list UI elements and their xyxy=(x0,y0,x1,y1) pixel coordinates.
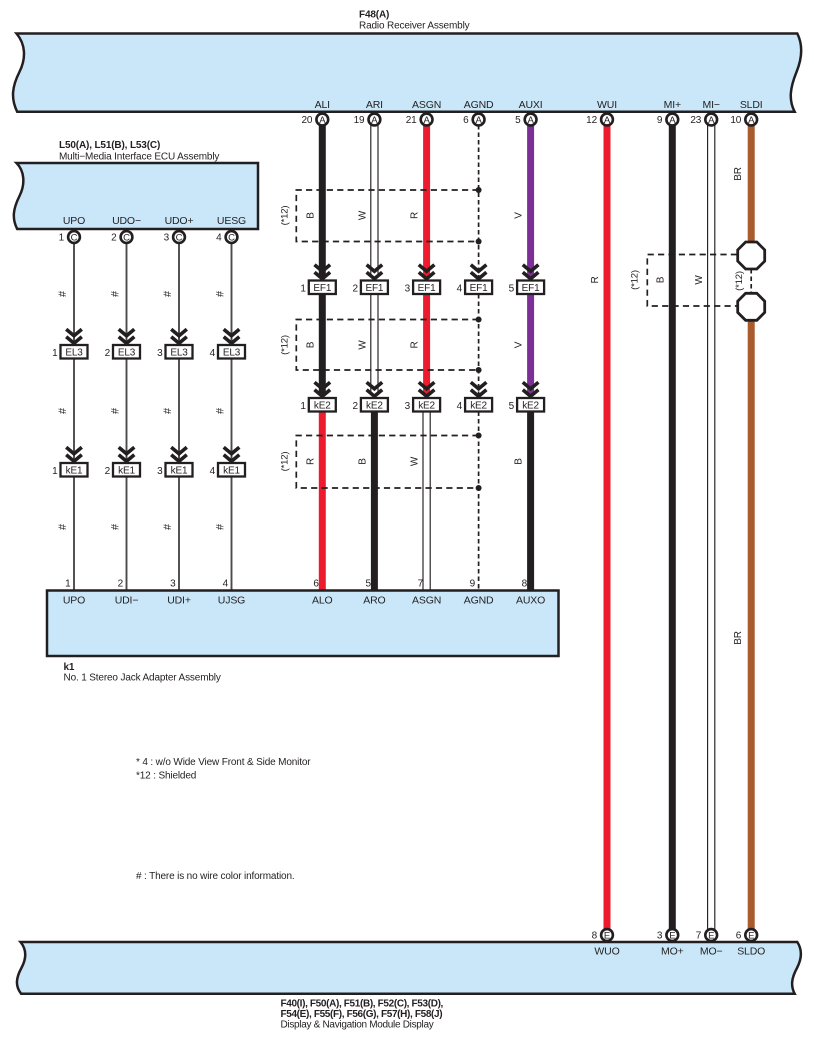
svg-text:#: # xyxy=(110,407,122,414)
svg-text:6: 6 xyxy=(736,931,742,942)
svg-text:A: A xyxy=(528,115,535,126)
svg-text:2: 2 xyxy=(352,283,358,294)
svg-text:#: # xyxy=(215,523,227,530)
svg-text:BR: BR xyxy=(733,167,744,181)
svg-text:#: # xyxy=(215,407,227,414)
svg-text:5: 5 xyxy=(515,115,521,126)
svg-text:ALI: ALI xyxy=(315,99,330,111)
svg-text:kE1: kE1 xyxy=(66,466,83,477)
svg-text:21: 21 xyxy=(406,115,417,126)
svg-text:EF1: EF1 xyxy=(313,283,331,294)
svg-text:7: 7 xyxy=(696,931,702,942)
svg-text:UJSG: UJSG xyxy=(218,595,245,607)
svg-text:C: C xyxy=(176,232,183,243)
svg-text:B: B xyxy=(305,212,316,219)
svg-text:5: 5 xyxy=(509,283,515,294)
svg-text:#: # xyxy=(162,290,174,297)
svg-text:1: 1 xyxy=(52,348,58,359)
svg-text:#: # xyxy=(57,290,69,297)
svg-text:B: B xyxy=(655,276,666,283)
svg-text:UESG: UESG xyxy=(217,215,246,227)
svg-text:4: 4 xyxy=(457,283,463,294)
svg-text:F48(A): F48(A) xyxy=(359,10,389,21)
svg-text:3: 3 xyxy=(157,466,163,477)
svg-text:k1: k1 xyxy=(64,662,75,673)
svg-text:(*12): (*12) xyxy=(734,271,745,291)
svg-text:E: E xyxy=(604,930,610,941)
svg-text:1: 1 xyxy=(65,579,71,590)
svg-text:A: A xyxy=(476,115,483,126)
svg-text:A: A xyxy=(669,115,676,126)
svg-text:#: # xyxy=(162,523,174,530)
svg-text:12: 12 xyxy=(586,115,597,126)
svg-text:UDO−: UDO− xyxy=(112,215,141,227)
svg-text:No. 1 Stereo Jack Adapter Asse: No. 1 Stereo Jack Adapter Assembly xyxy=(64,673,221,684)
svg-text:WUO: WUO xyxy=(594,946,619,958)
svg-text:R: R xyxy=(410,341,421,348)
svg-text:EF1: EF1 xyxy=(470,283,488,294)
svg-text:A: A xyxy=(604,115,611,126)
svg-text:W: W xyxy=(410,456,421,466)
svg-text:A: A xyxy=(424,115,431,126)
svg-text:8: 8 xyxy=(522,579,528,590)
svg-text:ASGN: ASGN xyxy=(412,99,441,111)
svg-text:A: A xyxy=(319,115,326,126)
svg-text:6: 6 xyxy=(463,115,469,126)
svg-text:W: W xyxy=(357,210,368,220)
svg-text:Multi−Media Interface ECU Asse: Multi−Media Interface ECU Assembly xyxy=(59,152,219,163)
svg-text:1: 1 xyxy=(300,401,306,412)
svg-text:R: R xyxy=(410,212,421,219)
svg-text:(*12): (*12) xyxy=(280,452,291,472)
svg-text:kE1: kE1 xyxy=(118,466,135,477)
svg-text:#: # xyxy=(57,407,69,414)
svg-text:UPO: UPO xyxy=(63,595,85,607)
svg-text:R: R xyxy=(305,458,316,465)
svg-text:10: 10 xyxy=(730,115,741,126)
svg-text:A: A xyxy=(748,115,755,126)
svg-text:9: 9 xyxy=(657,115,663,126)
svg-text:kE2: kE2 xyxy=(470,401,487,412)
svg-text:EF1: EF1 xyxy=(522,283,540,294)
svg-text:2: 2 xyxy=(118,579,124,590)
svg-text:R: R xyxy=(590,276,601,283)
svg-text:kE1: kE1 xyxy=(171,466,188,477)
svg-text:C: C xyxy=(123,232,130,243)
svg-text:kE2: kE2 xyxy=(366,401,383,412)
svg-text:SLDI: SLDI xyxy=(740,99,763,111)
svg-text:EL3: EL3 xyxy=(118,348,136,359)
svg-text:A: A xyxy=(371,115,378,126)
svg-text:# : There is no wire color inf: # : There is no wire color information. xyxy=(136,871,294,882)
svg-text:1: 1 xyxy=(300,283,306,294)
svg-text:#: # xyxy=(110,523,122,530)
svg-text:EL3: EL3 xyxy=(170,348,188,359)
svg-text:3: 3 xyxy=(405,401,411,412)
svg-text:AUXO: AUXO xyxy=(516,595,545,607)
svg-text:MO−: MO− xyxy=(700,946,723,958)
svg-text:4: 4 xyxy=(457,401,463,412)
svg-text:B: B xyxy=(357,458,368,465)
svg-text:19: 19 xyxy=(354,115,365,126)
svg-text:SLDO: SLDO xyxy=(737,946,765,958)
svg-text:8: 8 xyxy=(592,931,598,942)
svg-text:E: E xyxy=(669,930,675,941)
svg-text:3: 3 xyxy=(170,579,176,590)
svg-text:E: E xyxy=(748,930,754,941)
svg-text:*12 : Shielded: *12 : Shielded xyxy=(136,771,196,782)
svg-text:EF1: EF1 xyxy=(418,283,436,294)
svg-text:UDI−: UDI− xyxy=(115,595,139,607)
svg-text:9: 9 xyxy=(470,579,476,590)
svg-text:V: V xyxy=(514,341,525,348)
svg-text:AGND: AGND xyxy=(464,99,494,111)
svg-text:4: 4 xyxy=(223,579,229,590)
svg-text:W: W xyxy=(357,340,368,350)
svg-text:MO+: MO+ xyxy=(661,946,684,958)
svg-text:kE1: kE1 xyxy=(223,466,240,477)
svg-text:#: # xyxy=(215,290,227,297)
svg-text:3: 3 xyxy=(157,348,163,359)
svg-text:#: # xyxy=(57,523,69,530)
svg-text:Display & Navigation Module Di: Display & Navigation Module Display xyxy=(281,1019,434,1030)
svg-text:UPO: UPO xyxy=(63,215,85,227)
svg-text:(*12): (*12) xyxy=(280,206,291,226)
svg-text:2: 2 xyxy=(352,401,358,412)
svg-text:A: A xyxy=(708,115,715,126)
svg-text:EL3: EL3 xyxy=(65,348,83,359)
svg-text:C: C xyxy=(228,232,235,243)
svg-text:EL3: EL3 xyxy=(223,348,241,359)
svg-text:4: 4 xyxy=(216,233,222,244)
svg-text:MI−: MI− xyxy=(703,99,720,111)
svg-text:2: 2 xyxy=(111,233,117,244)
svg-text:20: 20 xyxy=(301,115,312,126)
svg-text:3: 3 xyxy=(405,283,411,294)
svg-text:EF1: EF1 xyxy=(365,283,383,294)
svg-text:AGND: AGND xyxy=(464,595,494,607)
svg-text:7: 7 xyxy=(418,579,424,590)
svg-text:(*12): (*12) xyxy=(630,270,641,290)
svg-text:(*12): (*12) xyxy=(280,335,291,355)
svg-text:F54(E), F55(F), F56(G), F57(H): F54(E), F55(F), F56(G), F57(H), F58(J) xyxy=(281,1009,443,1020)
svg-text:2: 2 xyxy=(105,466,111,477)
svg-text:ASGN: ASGN xyxy=(412,595,441,607)
svg-text:5: 5 xyxy=(365,579,371,590)
svg-text:1: 1 xyxy=(59,233,65,244)
svg-text:AUXI: AUXI xyxy=(519,99,543,111)
svg-text:5: 5 xyxy=(509,401,515,412)
svg-text:W: W xyxy=(694,275,705,285)
svg-text:23: 23 xyxy=(690,115,701,126)
svg-text:ARO: ARO xyxy=(363,595,385,607)
svg-text:WUI: WUI xyxy=(597,99,617,111)
svg-text:1: 1 xyxy=(52,466,58,477)
svg-text:B: B xyxy=(514,458,525,465)
svg-text:C: C xyxy=(71,232,78,243)
svg-text:UDI+: UDI+ xyxy=(167,595,191,607)
svg-text:2: 2 xyxy=(105,348,111,359)
svg-text:3: 3 xyxy=(657,931,663,942)
svg-text:* 4 : w/o Wide View Front & Si: * 4 : w/o Wide View Front & Side Monitor xyxy=(136,757,311,768)
svg-text:E: E xyxy=(708,930,714,941)
svg-text:L50(A), L51(B), L53(C): L50(A), L51(B), L53(C) xyxy=(59,140,160,151)
svg-text:Radio Receiver Assembly: Radio Receiver Assembly xyxy=(359,21,470,32)
svg-text:ALO: ALO xyxy=(312,595,333,607)
svg-text:MI+: MI+ xyxy=(664,99,681,111)
svg-text:kE2: kE2 xyxy=(314,401,331,412)
svg-text:#: # xyxy=(162,407,174,414)
svg-text:4: 4 xyxy=(210,466,216,477)
svg-text:3: 3 xyxy=(164,233,170,244)
svg-text:B: B xyxy=(305,341,316,348)
svg-text:kE2: kE2 xyxy=(522,401,539,412)
svg-text:#: # xyxy=(110,290,122,297)
svg-text:4: 4 xyxy=(210,348,216,359)
svg-text:BR: BR xyxy=(733,631,744,645)
svg-text:kE2: kE2 xyxy=(418,401,435,412)
svg-text:6: 6 xyxy=(313,579,319,590)
svg-text:ARI: ARI xyxy=(366,99,383,111)
svg-text:UDO+: UDO+ xyxy=(165,215,194,227)
svg-text:V: V xyxy=(514,212,525,219)
